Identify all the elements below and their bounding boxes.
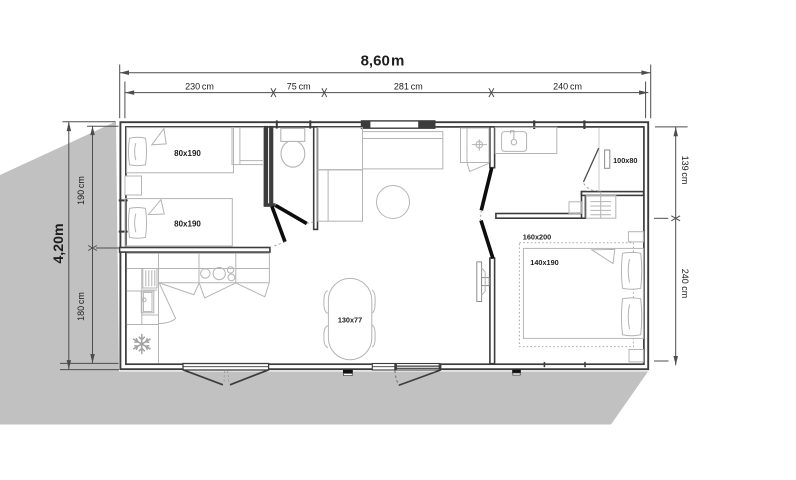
svg-text:80x190: 80x190 (174, 149, 201, 158)
svg-text:240 cm: 240 cm (680, 269, 690, 299)
svg-text:75 cm: 75 cm (287, 81, 311, 91)
svg-text:4,20m: 4,20m (51, 223, 67, 263)
svg-text:190 cm: 190 cm (76, 176, 86, 205)
svg-text:8,60 m: 8,60 m (361, 53, 405, 70)
svg-text:139 cm: 139 cm (680, 156, 690, 185)
svg-text:80x190: 80x190 (174, 220, 201, 229)
svg-text:140x190: 140x190 (530, 258, 558, 267)
svg-text:230 cm: 230 cm (185, 81, 214, 91)
svg-text:130x77: 130x77 (338, 316, 362, 325)
svg-text:160x200: 160x200 (523, 233, 551, 242)
svg-text:180 cm: 180 cm (76, 292, 86, 321)
svg-text:100x80: 100x80 (613, 156, 637, 165)
svg-text:240 cm: 240 cm (553, 81, 582, 91)
svg-text:281 cm: 281 cm (394, 81, 423, 91)
